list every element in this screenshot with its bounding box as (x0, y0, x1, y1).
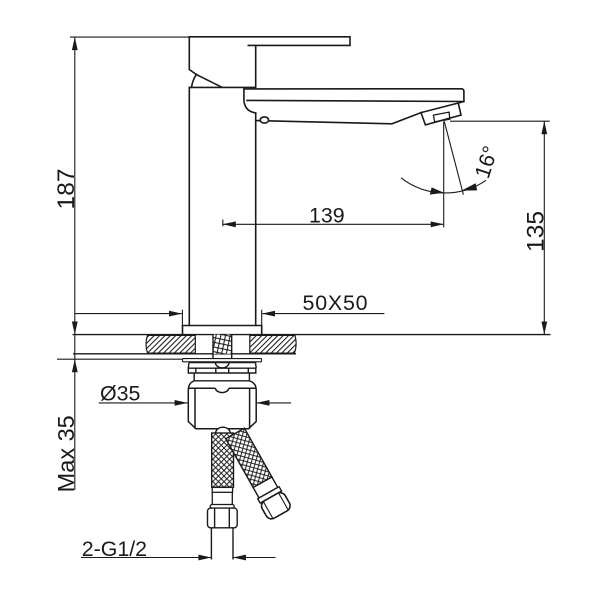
svg-text:Ø35: Ø35 (100, 382, 140, 406)
svg-text:Max 35: Max 35 (53, 415, 79, 492)
svg-text:50X50: 50X50 (303, 291, 369, 315)
svg-text:2-G1/2: 2-G1/2 (82, 537, 147, 561)
svg-text:187: 187 (53, 169, 80, 210)
svg-text:139: 139 (309, 203, 345, 227)
svg-text:135: 135 (523, 211, 550, 252)
svg-text:16°: 16° (470, 143, 503, 181)
